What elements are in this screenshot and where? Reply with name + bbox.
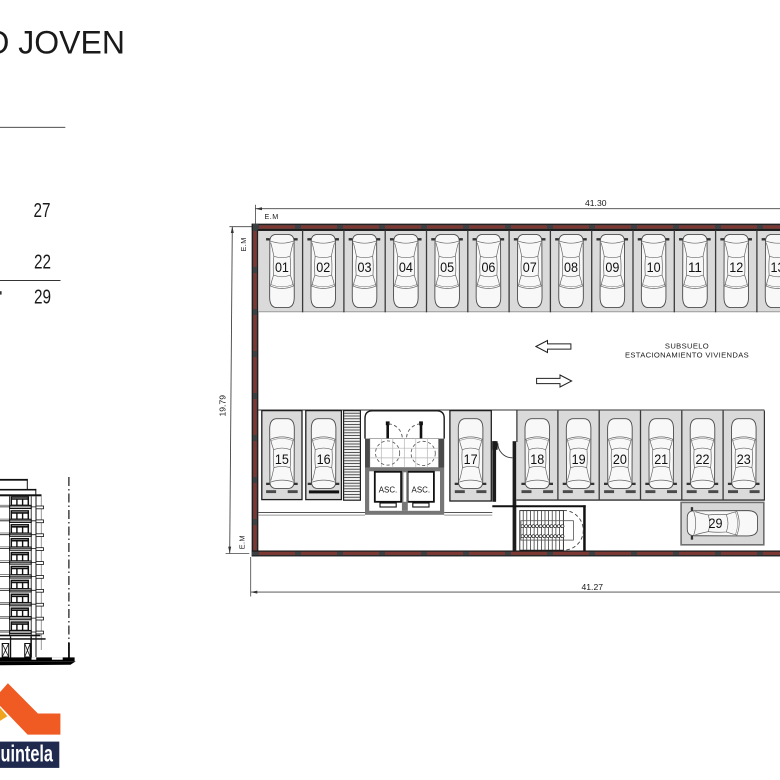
svg-text:29: 29: [709, 515, 723, 531]
svg-text:41.30: 41.30: [585, 198, 607, 208]
svg-text:uintela: uintela: [1, 740, 54, 766]
svg-text:E.M: E.M: [238, 535, 247, 549]
svg-text:19.79: 19.79: [217, 395, 227, 417]
svg-text:SUBSUELO: SUBSUELO: [665, 341, 709, 350]
svg-text:18: 18: [530, 451, 544, 467]
svg-text:03: 03: [358, 259, 372, 275]
svg-text:29: 29: [34, 286, 51, 308]
svg-text:05: 05: [440, 259, 454, 275]
svg-text:22: 22: [34, 251, 51, 273]
svg-text:09: 09: [605, 259, 619, 275]
svg-text:10: 10: [647, 259, 661, 275]
svg-text:ASC.: ASC.: [379, 485, 398, 494]
svg-text:41.27: 41.27: [582, 582, 604, 592]
svg-text:07: 07: [523, 259, 537, 275]
svg-text:27: 27: [34, 200, 51, 222]
svg-text:E.M: E.M: [239, 237, 248, 251]
svg-text:ASC.: ASC.: [412, 485, 431, 494]
svg-text:E.M: E.M: [265, 212, 279, 221]
svg-text:02: 02: [316, 259, 330, 275]
svg-text:ESTACIONAMIENTO VIVIENDAS: ESTACIONAMIENTO VIVIENDAS: [625, 350, 749, 359]
svg-text:08: 08: [564, 259, 578, 275]
svg-text:15: 15: [275, 451, 289, 467]
svg-text:06: 06: [481, 259, 495, 275]
svg-text:01: 01: [275, 259, 289, 275]
svg-text:17: 17: [464, 451, 478, 467]
svg-text:22: 22: [696, 451, 710, 467]
svg-text:12: 12: [729, 259, 743, 275]
svg-text:O JOVEN: O JOVEN: [0, 25, 125, 61]
svg-text:21: 21: [654, 451, 668, 467]
svg-text:16: 16: [317, 451, 331, 467]
svg-text:13: 13: [771, 259, 780, 275]
svg-text:23: 23: [737, 451, 751, 467]
svg-text:11: 11: [688, 259, 702, 275]
svg-text:19: 19: [572, 451, 586, 467]
svg-text:04: 04: [399, 259, 413, 275]
svg-text:20: 20: [613, 451, 627, 467]
